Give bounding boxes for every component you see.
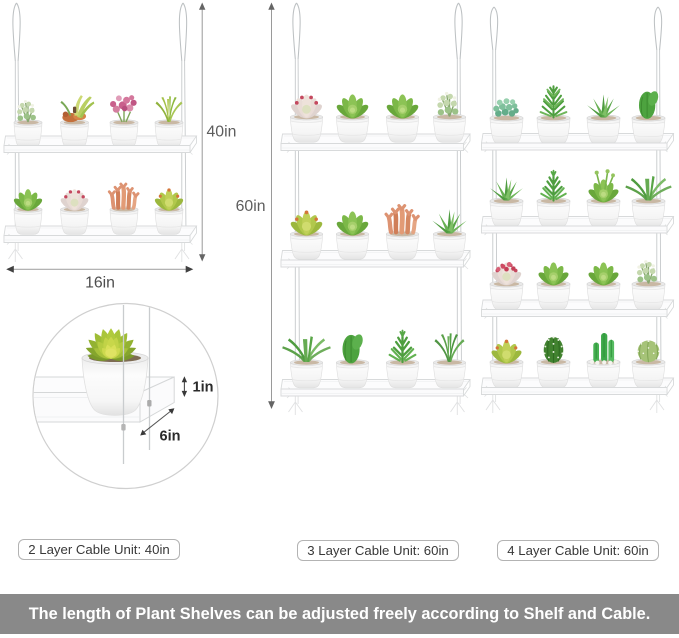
svg-text:40in: 40in: [207, 124, 237, 141]
svg-text:1in: 1in: [193, 380, 214, 396]
svg-text:6in: 6in: [160, 429, 181, 445]
svg-text:16in: 16in: [85, 275, 115, 292]
svg-text:60in: 60in: [236, 198, 266, 215]
